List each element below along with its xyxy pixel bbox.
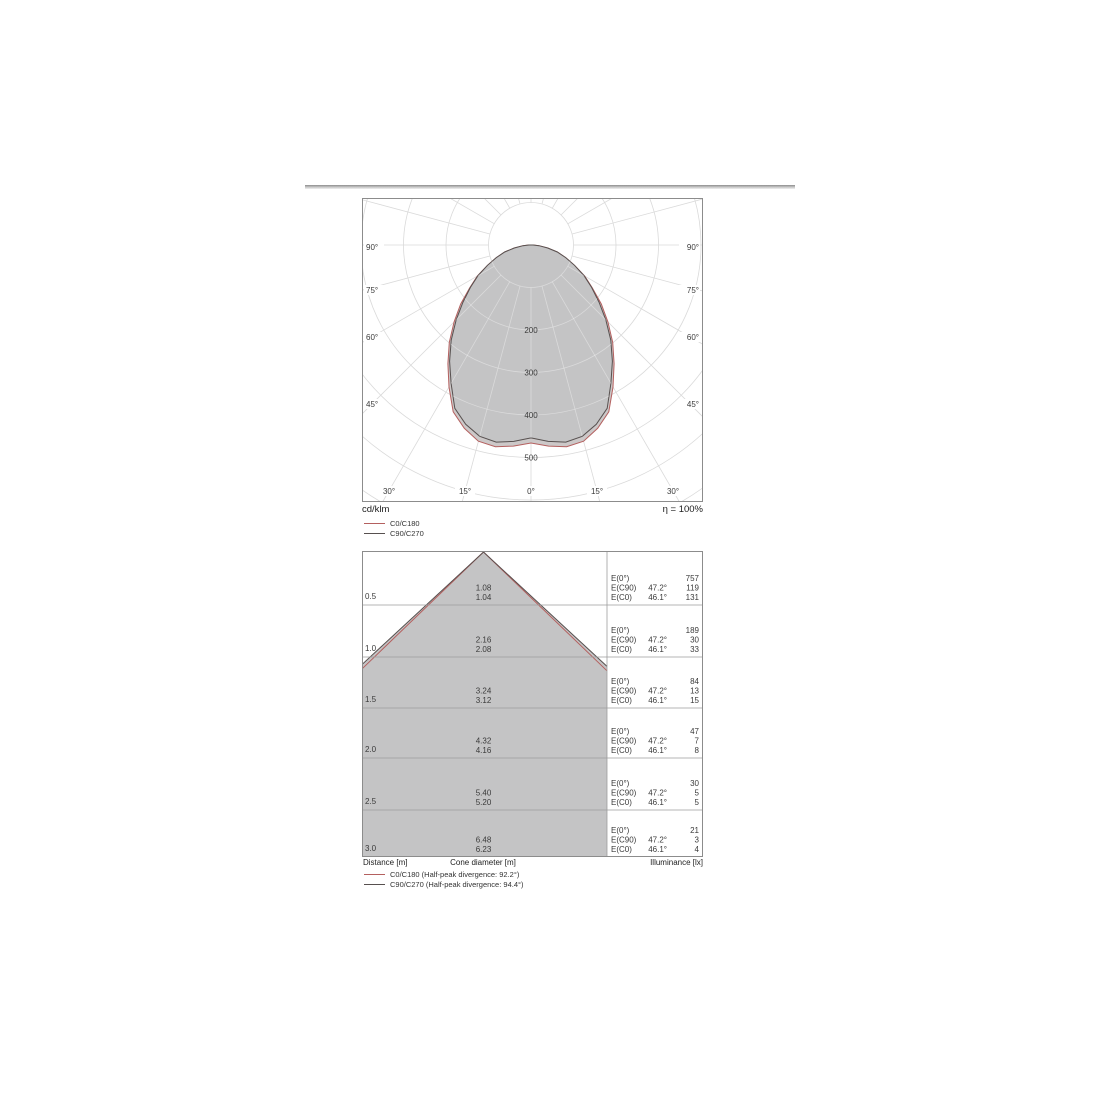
legend-label: C0/C180 [390, 519, 420, 528]
legend-label: C90/C270 (Half-peak divergence: 94.4°) [390, 880, 524, 889]
angle-label-left: 75° [366, 286, 378, 295]
ec90-value: 3 [695, 836, 700, 845]
ec0-angle: 46.1° [648, 696, 667, 705]
c90-c270-line-swatch [364, 884, 385, 885]
cone-diameter-c0: 3.12 [476, 696, 492, 705]
c0-c180-line-swatch [364, 523, 385, 524]
polar-caption-row: cd/klm η = 100% [362, 502, 703, 516]
ec0-angle: 46.1° [648, 746, 667, 755]
angle-label-left: 60° [366, 333, 378, 342]
legend-item-c0-c180: C0/C180 [364, 518, 424, 528]
ec90-angle: 47.2° [648, 836, 667, 845]
angle-label-right: 60° [687, 333, 699, 342]
cone-diameter-c0: 4.16 [476, 746, 492, 755]
ec90-angle: 47.2° [648, 584, 667, 593]
cone-diameter-c90: 1.08 [476, 584, 492, 593]
cone-diameter-c0: 6.23 [476, 845, 492, 854]
ec90-value: 7 [695, 737, 700, 746]
c0-c180-line-swatch [364, 874, 385, 875]
distance-column-label: Distance [m] [363, 858, 407, 867]
ring-value-label: 300 [524, 369, 538, 378]
c90-c270-line-swatch [364, 533, 385, 534]
ec90-label: E(C90) [611, 737, 637, 746]
cone-diameter-c0: 5.20 [476, 798, 492, 807]
cone-legend: C0/C180 (Half-peak divergence: 92.2°) C9… [364, 869, 524, 889]
cone-diameter-c90: 5.40 [476, 789, 492, 798]
ec0-value: 131 [686, 593, 700, 602]
polar-efficiency-label: η = 100% [663, 504, 703, 515]
e0-label: E(0°) [611, 826, 630, 835]
ec0-value: 8 [695, 746, 700, 755]
ec90-angle: 47.2° [648, 789, 667, 798]
distance-value: 1.0 [365, 644, 377, 653]
ec0-label: E(C0) [611, 696, 632, 705]
ec90-label: E(C90) [611, 584, 637, 593]
ec0-angle: 46.1° [648, 645, 667, 654]
polar-legend: C0/C180 C90/C270 [364, 518, 424, 538]
cone-diagram-chart: 0.51.081.04E(0°)757E(C90)47.2°119E(C0)46… [362, 551, 703, 857]
illuminance-column-label: Illuminance [lx] [650, 858, 703, 867]
angle-label-left: 45° [366, 400, 378, 409]
angle-label-right: 45° [687, 400, 699, 409]
cone-diameter-c0: 1.04 [476, 593, 492, 602]
ec0-label: E(C0) [611, 845, 632, 854]
ec0-angle: 46.1° [648, 593, 667, 602]
photometric-report-page: 20030040050090°90°75°75°60°60°45°45°30°1… [0, 0, 1100, 1100]
cone-diameter-c90: 2.16 [476, 636, 492, 645]
ec0-value: 4 [695, 845, 700, 854]
ec0-label: E(C0) [611, 593, 632, 602]
e0-label: E(0°) [611, 727, 630, 736]
angle-label-bottom: 15° [459, 487, 471, 496]
cone-diameter-column-label: Cone diameter [m] [450, 858, 516, 867]
e0-value: 47 [690, 727, 699, 736]
e0-value: 21 [690, 826, 699, 835]
ec90-label: E(C90) [611, 636, 637, 645]
ec90-value: 13 [690, 687, 699, 696]
cone-diameter-c90: 3.24 [476, 687, 492, 696]
distance-value: 1.5 [365, 695, 377, 704]
distance-value: 3.0 [365, 844, 377, 853]
e0-value: 30 [690, 779, 699, 788]
angle-label-bottom: 0° [527, 487, 535, 496]
cone-diameter-c90: 6.48 [476, 836, 492, 845]
ec90-label: E(C90) [611, 789, 637, 798]
e0-label: E(0°) [611, 779, 630, 788]
polar-intensity-chart: 20030040050090°90°75°75°60°60°45°45°30°1… [362, 198, 703, 502]
ec90-value: 5 [695, 789, 700, 798]
legend-item-c0-c180-divergence: C0/C180 (Half-peak divergence: 92.2°) [364, 869, 524, 879]
e0-value: 757 [686, 574, 700, 583]
cone-diameter-c90: 4.32 [476, 737, 492, 746]
legend-label: C0/C180 (Half-peak divergence: 92.2°) [390, 870, 519, 879]
ec90-label: E(C90) [611, 687, 637, 696]
angle-label-bottom: 30° [667, 487, 679, 496]
e0-value: 84 [690, 677, 699, 686]
angle-label-bottom: 15° [591, 487, 603, 496]
distance-value: 2.5 [365, 797, 377, 806]
ec0-value: 5 [695, 798, 700, 807]
ring-value-label: 400 [524, 411, 538, 420]
ring-value-label: 200 [524, 326, 538, 335]
legend-item-c90-c270-divergence: C90/C270 (Half-peak divergence: 94.4°) [364, 879, 524, 889]
ec0-label: E(C0) [611, 798, 632, 807]
angle-label-right: 75° [687, 286, 699, 295]
ec90-label: E(C90) [611, 836, 637, 845]
ec0-angle: 46.1° [648, 798, 667, 807]
e0-label: E(0°) [611, 574, 630, 583]
ec0-value: 33 [690, 645, 699, 654]
ec90-angle: 47.2° [648, 636, 667, 645]
ec90-value: 119 [686, 584, 699, 593]
angle-label-left: 90° [366, 243, 378, 252]
ring-value-label: 500 [524, 454, 538, 463]
ec0-label: E(C0) [611, 746, 632, 755]
e0-label: E(0°) [611, 677, 630, 686]
cone-diameter-c0: 2.08 [476, 645, 492, 654]
legend-label: C90/C270 [390, 529, 424, 538]
polar-unit-label: cd/klm [362, 504, 389, 515]
angle-label-bottom: 30° [383, 487, 395, 496]
top-divider-bar [305, 185, 795, 189]
ec90-value: 30 [690, 636, 699, 645]
distance-value: 0.5 [365, 592, 377, 601]
legend-item-c90-c270: C90/C270 [364, 528, 424, 538]
ec90-angle: 47.2° [648, 737, 667, 746]
ec0-value: 15 [690, 696, 699, 705]
e0-label: E(0°) [611, 626, 630, 635]
e0-value: 189 [686, 626, 700, 635]
ec0-angle: 46.1° [648, 845, 667, 854]
distance-value: 2.0 [365, 745, 377, 754]
ec0-label: E(C0) [611, 645, 632, 654]
angle-label-right: 90° [687, 243, 699, 252]
ec90-angle: 47.2° [648, 687, 667, 696]
